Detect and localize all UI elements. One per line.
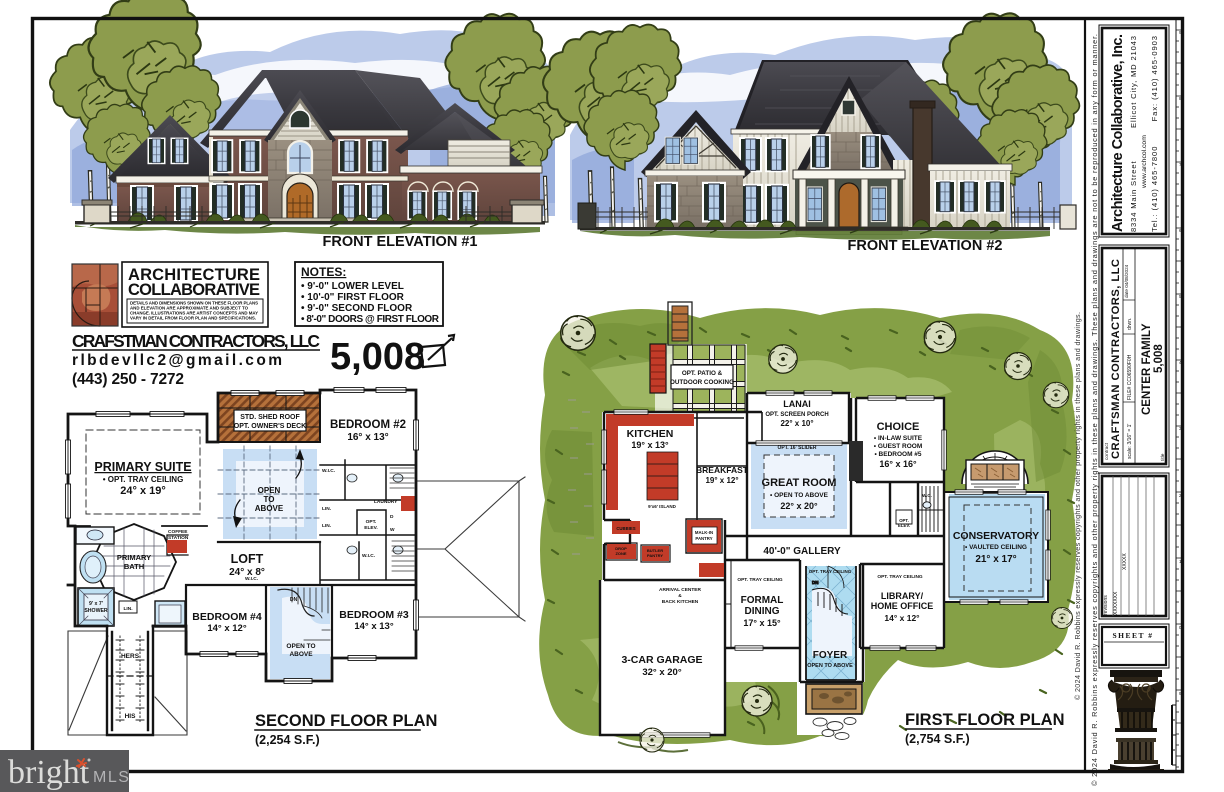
svg-text:scale: 3/16" = 1': scale: 3/16" = 1': [1127, 424, 1133, 459]
svg-text:OPEN: OPEN: [258, 486, 281, 495]
svg-text:CRAFTSMAN CONTRACTORS, LLC: CRAFTSMAN CONTRACTORS, LLC: [1110, 259, 1122, 459]
svg-text:40'-0" GALLERY: 40'-0" GALLERY: [763, 546, 841, 557]
svg-text:LIBRARY/: LIBRARY/: [881, 591, 924, 601]
svg-text:16° x 16°: 16° x 16°: [879, 459, 917, 469]
svg-text:14° x 13°: 14° x 13°: [354, 621, 393, 632]
svg-text:www.archcol.com: www.archcol.com: [1141, 135, 1148, 189]
svg-text:BREAKFAST: BREAKFAST: [696, 465, 749, 475]
svg-text:OPT. OWNER'S DECK: OPT. OWNER'S DECK: [234, 423, 306, 430]
svg-text:FIRST FLOOR PLAN: FIRST FLOOR PLAN: [905, 711, 1065, 729]
svg-text:ZONE: ZONE: [615, 551, 626, 556]
svg-text:VARY IN DETAIL FROM FLOOR PLAN: VARY IN DETAIL FROM FLOOR PLAN AND SPECI…: [130, 316, 256, 321]
svg-text:OPEN TO: OPEN TO: [286, 643, 315, 650]
svg-text:HIS: HIS: [125, 713, 137, 720]
svg-text:FILE# CC06590F0H: FILE# CC06590F0H: [1127, 354, 1133, 400]
svg-text:&: &: [678, 593, 682, 599]
svg-text:BEDROOM #3: BEDROOM #3: [339, 609, 409, 621]
svg-text:LIN.: LIN.: [123, 606, 132, 612]
svg-text:ABOVE: ABOVE: [289, 651, 313, 658]
svg-text:r l b d e v l l c 2 @ g m a i: r l b d e v l l c 2 @ g m a i l . c o m: [72, 352, 282, 369]
svg-text:19° x 13°: 19° x 13°: [631, 440, 669, 450]
svg-text:W: W: [390, 527, 395, 533]
svg-text:revisions: revisions: [1103, 595, 1109, 615]
svg-text:W.I.C.: W.I.C.: [322, 468, 335, 474]
svg-text:PRIMARY: PRIMARY: [117, 553, 151, 562]
svg-text:24° x 19°: 24° x 19°: [120, 485, 166, 497]
svg-text:3-CAR GARAGE: 3-CAR GARAGE: [621, 654, 702, 666]
svg-text:LAUNDRY: LAUNDRY: [374, 499, 398, 505]
svg-text:© 2024 David R. Robbins expres: © 2024 David R. Robbins expressly reserv…: [1090, 34, 1099, 786]
svg-text:• VAULTED CEILING: • VAULTED CEILING: [965, 544, 1027, 551]
svg-text:OPT.: OPT.: [366, 519, 377, 525]
svg-text:HOME OFFICE: HOME OFFICE: [871, 601, 934, 611]
svg-text:PRIMARY SUITE: PRIMARY SUITE: [94, 460, 191, 474]
svg-text:19° x 12°: 19° x 12°: [705, 476, 738, 485]
svg-text:Tel.: (410) 465-7800 Fa: Tel.: (410) 465-7800 Fax: (410) 465-0903: [1150, 36, 1159, 232]
svg-text:SHEET #: SHEET #: [1112, 631, 1153, 640]
svg-text:HERS: HERS: [121, 653, 140, 660]
svg-text:FRONT ELEVATION #1: FRONT ELEVATION #1: [323, 234, 478, 250]
svg-text:OPT. 16' SLIDER: OPT. 16' SLIDER: [778, 445, 817, 451]
svg-text:9' x 7': 9' x 7': [89, 601, 103, 607]
svg-text:LIN.: LIN.: [322, 523, 331, 529]
svg-text:BEDROOM #4: BEDROOM #4: [192, 611, 262, 623]
svg-text:PANTRY: PANTRY: [647, 553, 663, 558]
svg-text:• 9'-0" SECOND FLOOR: • 9'-0" SECOND FLOOR: [301, 303, 413, 314]
svg-text:OPT. TRAY CEILING: OPT. TRAY CEILING: [809, 569, 852, 574]
svg-text:CRAFSTMAN CONTRACTORS, LLC: CRAFSTMAN CONTRACTORS, LLC: [72, 331, 320, 351]
svg-text:drwn.: drwn.: [1127, 318, 1133, 330]
svg-text:MLS: MLS: [93, 769, 130, 786]
svg-text:COFFEE: COFFEE: [168, 529, 188, 535]
svg-text:SECOND FLOOR PLAN: SECOND FLOOR PLAN: [255, 712, 437, 730]
svg-text:17° x 15°: 17° x 15°: [743, 618, 781, 628]
svg-text:COLLABORATIVE: COLLABORATIVE: [128, 281, 260, 299]
svg-text:ELEV.: ELEV.: [364, 525, 377, 531]
svg-text:FOYER: FOYER: [813, 650, 848, 661]
svg-text:OPEN TO ABOVE: OPEN TO ABOVE: [807, 663, 853, 669]
svg-text:OUTDOOR COOKING: OUTDOOR COOKING: [670, 379, 734, 386]
svg-text:© 2024 David R. Robbins expres: © 2024 David R. Robbins expressly reserv…: [1073, 312, 1082, 700]
svg-text:22° x 20°: 22° x 20°: [780, 501, 818, 511]
svg-text:• 10'-0" FIRST FLOOR: • 10'-0" FIRST FLOOR: [301, 292, 405, 303]
svg-text:22° x 10°: 22° x 10°: [780, 419, 813, 428]
svg-text:D: D: [390, 514, 394, 520]
svg-text:(2,254 S.F.): (2,254 S.F.): [255, 733, 320, 747]
svg-text:BEDROOM #2: BEDROOM #2: [330, 419, 406, 431]
svg-text:• OPT. TRAY CEILING: • OPT. TRAY CEILING: [103, 475, 184, 484]
svg-text:• 9'-0" LOWER LEVEL: • 9'-0" LOWER LEVEL: [301, 281, 404, 292]
svg-text:5,008: 5,008: [330, 336, 425, 378]
svg-text:21° x 17°: 21° x 17°: [975, 554, 1016, 565]
svg-text:TO: TO: [264, 495, 275, 504]
svg-text:CHOICE: CHOICE: [877, 421, 920, 433]
svg-text:XXXXXXX: XXXXXXX: [1113, 591, 1119, 615]
svg-text:14° x 12°: 14° x 12°: [884, 613, 920, 623]
svg-text:CENTER FAMILY: CENTER FAMILY: [1141, 323, 1153, 415]
svg-text:LIN.: LIN.: [322, 506, 331, 512]
svg-text:BACK KITCHEN: BACK KITCHEN: [662, 599, 699, 605]
svg-text:W.I.C.: W.I.C.: [245, 576, 258, 582]
svg-text:OPT. TRAY CEILING: OPT. TRAY CEILING: [737, 577, 783, 583]
svg-text:(2,754 S.F.): (2,754 S.F.): [905, 732, 970, 746]
svg-text:KITCHEN: KITCHEN: [627, 428, 674, 440]
svg-text:14° x 12°: 14° x 12°: [207, 623, 246, 634]
svg-text:SHOWER: SHOWER: [84, 608, 108, 614]
svg-text:5,008: 5,008: [1153, 344, 1165, 373]
svg-text:FORMAL: FORMAL: [741, 595, 784, 606]
svg-text:DN: DN: [290, 597, 298, 603]
svg-text:OPT. TRAY CEILING: OPT. TRAY CEILING: [877, 574, 923, 580]
svg-text:• BEDROOM #5: • BEDROOM #5: [874, 451, 921, 458]
svg-text:• OPEN TO ABOVE: • OPEN TO ABOVE: [770, 492, 829, 499]
svg-text:STD. SHED ROOF: STD. SHED ROOF: [240, 414, 300, 421]
svg-text:CUBBIES: CUBBIES: [616, 526, 635, 531]
svg-text:ABOVE: ABOVE: [255, 504, 284, 513]
svg-text:(443) 250 - 7272: (443) 250 - 7272: [72, 371, 184, 388]
svg-text:OPT. SCREEN PORCH: OPT. SCREEN PORCH: [765, 412, 828, 418]
svg-text:PANTRY: PANTRY: [695, 536, 712, 541]
svg-text:NOTES:: NOTES:: [301, 265, 346, 279]
svg-text:MALK-IN: MALK-IN: [695, 530, 713, 535]
svg-text:CONSERVATORY: CONSERVATORY: [953, 530, 1039, 542]
svg-text:Architecture Collaborative,: Architecture Collaborative, Inc.: [1110, 34, 1126, 232]
svg-text:• GUEST ROOM: • GUEST ROOM: [874, 443, 923, 450]
svg-text:ARRIVAL CENTER: ARRIVAL CENTER: [659, 587, 701, 593]
svg-text:DN: DN: [812, 580, 819, 585]
svg-text:• IN-LAW SUITE: • IN-LAW SUITE: [874, 435, 923, 442]
svg-text:date 04/08/2024: date 04/08/2024: [1124, 264, 1129, 298]
svg-text:32° x 20°: 32° x 20°: [642, 667, 681, 678]
svg-text:W.I.C.: W.I.C.: [362, 553, 375, 559]
svg-text:• 8'-0" DOORS @ FIRST FLOOR: • 8'-0" DOORS @ FIRST FLOOR: [301, 314, 440, 325]
svg-text:OPT. PATIO &: OPT. PATIO &: [682, 370, 723, 377]
svg-text:DINING: DINING: [745, 606, 780, 617]
svg-text:LOFT: LOFT: [231, 552, 264, 566]
svg-text:BATH: BATH: [124, 562, 144, 571]
svg-text:STATION: STATION: [168, 535, 189, 541]
svg-text:8334 Main Street Ell: 8334 Main Street Ellicot City, MD 21043: [1129, 36, 1138, 232]
svg-text:9'x6' ISLAND: 9'x6' ISLAND: [648, 504, 676, 509]
svg-text:FRONT ELEVATION #2: FRONT ELEVATION #2: [848, 238, 1003, 254]
svg-text:LANAI: LANAI: [783, 399, 811, 409]
svg-text:GREAT ROOM: GREAT ROOM: [762, 477, 837, 489]
svg-text:16° x 13°: 16° x 13°: [347, 432, 388, 443]
svg-text:XXXXX: XXXXX: [1122, 553, 1128, 570]
svg-text:title: title: [1160, 453, 1166, 461]
